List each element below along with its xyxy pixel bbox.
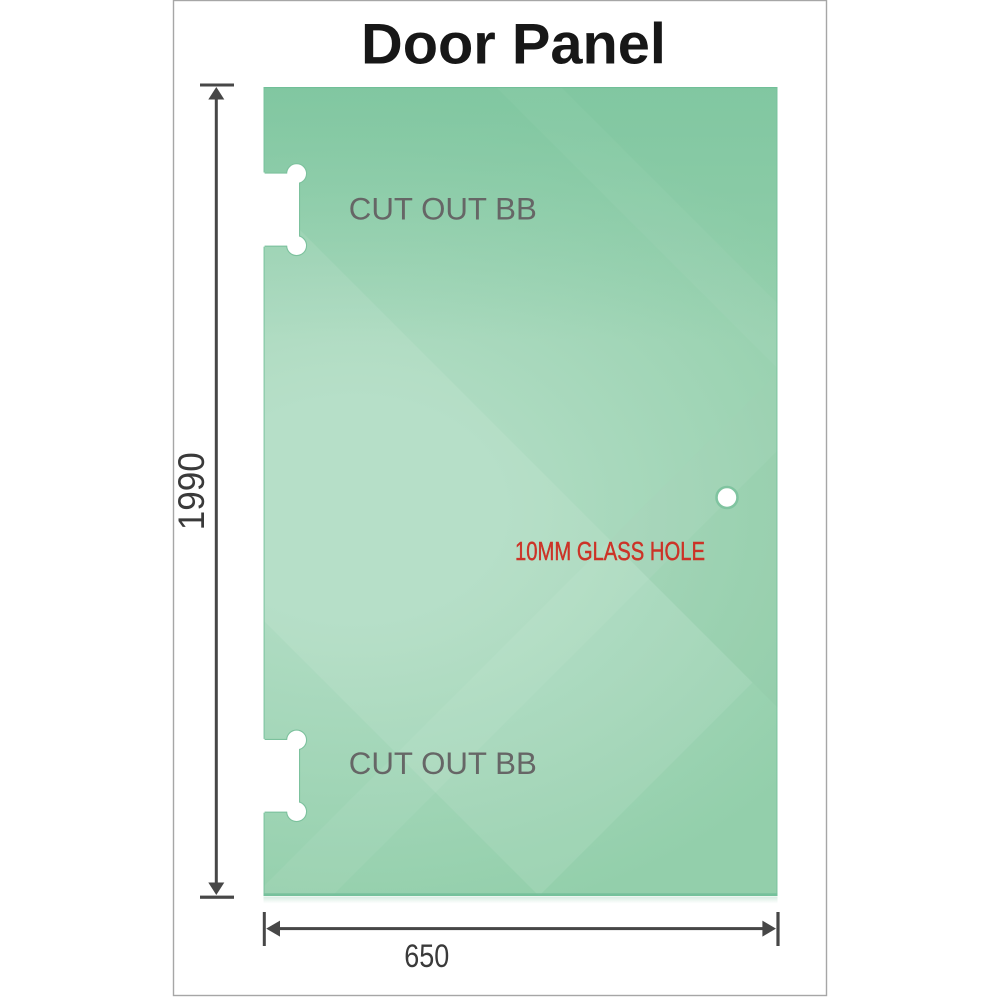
svg-text:Door Panel: Door Panel: [361, 13, 666, 77]
svg-text:650: 650: [404, 937, 449, 974]
svg-text:10MM GLASS HOLE: 10MM GLASS HOLE: [515, 538, 705, 566]
svg-text:CUT OUT BB: CUT OUT BB: [349, 192, 537, 227]
svg-text:CUT OUT BB: CUT OUT BB: [349, 746, 537, 781]
svg-text:1990: 1990: [171, 452, 212, 530]
